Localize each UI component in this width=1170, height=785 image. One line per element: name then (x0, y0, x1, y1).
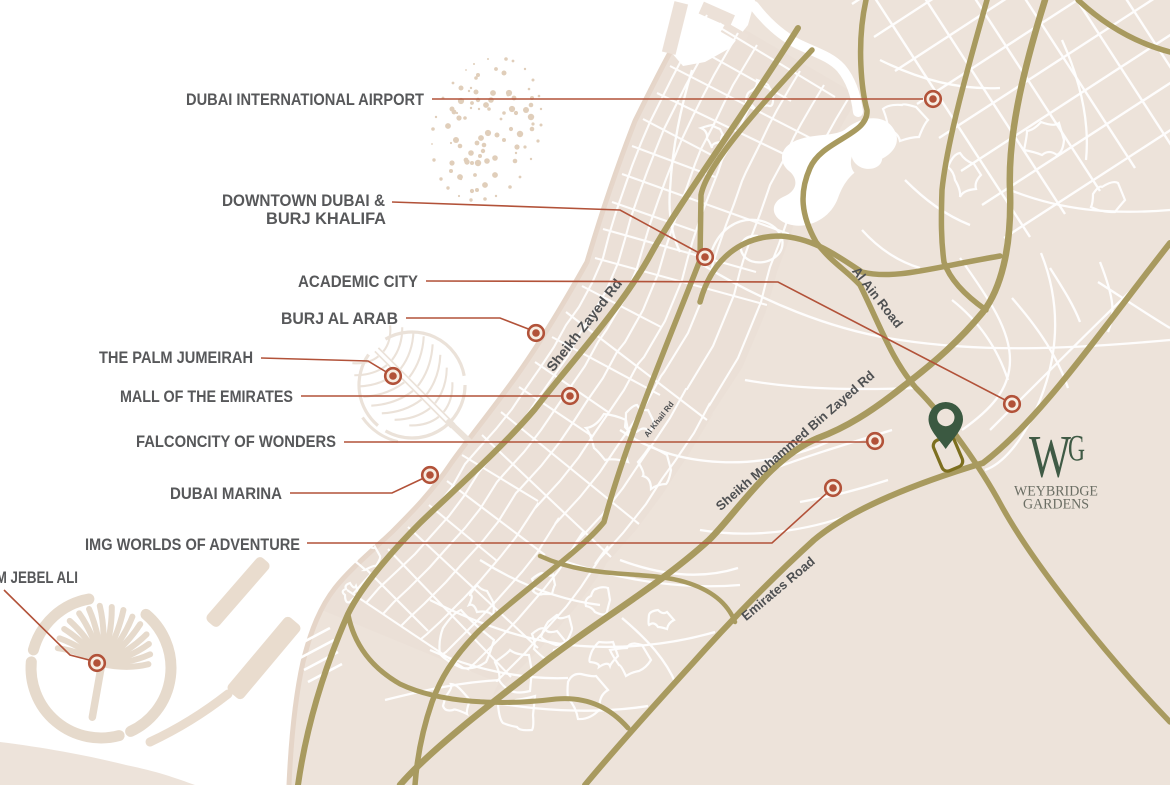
svg-text:G: G (1068, 429, 1085, 470)
svg-text:ACADEMIC CITY: ACADEMIC CITY (298, 272, 419, 291)
svg-text:FALCONCITY OF WONDERS: FALCONCITY OF WONDERS (136, 432, 336, 451)
svg-text:IMG WORLDS OF ADVENTURE: IMG WORLDS OF ADVENTURE (85, 535, 300, 554)
svg-text:DOWNTOWN DUBAI &: DOWNTOWN DUBAI & (222, 191, 385, 210)
svg-text:BURJ KHALIFA: BURJ KHALIFA (266, 209, 386, 228)
svg-text:DUBAI MARINA: DUBAI MARINA (170, 484, 282, 503)
svg-text:THE PALM JUMEIRAH: THE PALM JUMEIRAH (99, 348, 253, 367)
svg-text:GARDENS: GARDENS (1023, 497, 1089, 513)
svg-text:W: W (1029, 424, 1071, 490)
svg-text:PALM JEBEL ALI: PALM JEBEL ALI (0, 568, 78, 587)
svg-text:DUBAI INTERNATIONAL AIRPORT: DUBAI INTERNATIONAL AIRPORT (186, 90, 425, 109)
svg-text:MALL OF THE EMIRATES: MALL OF THE EMIRATES (120, 387, 293, 406)
svg-text:BURJ AL ARAB: BURJ AL ARAB (281, 309, 398, 328)
